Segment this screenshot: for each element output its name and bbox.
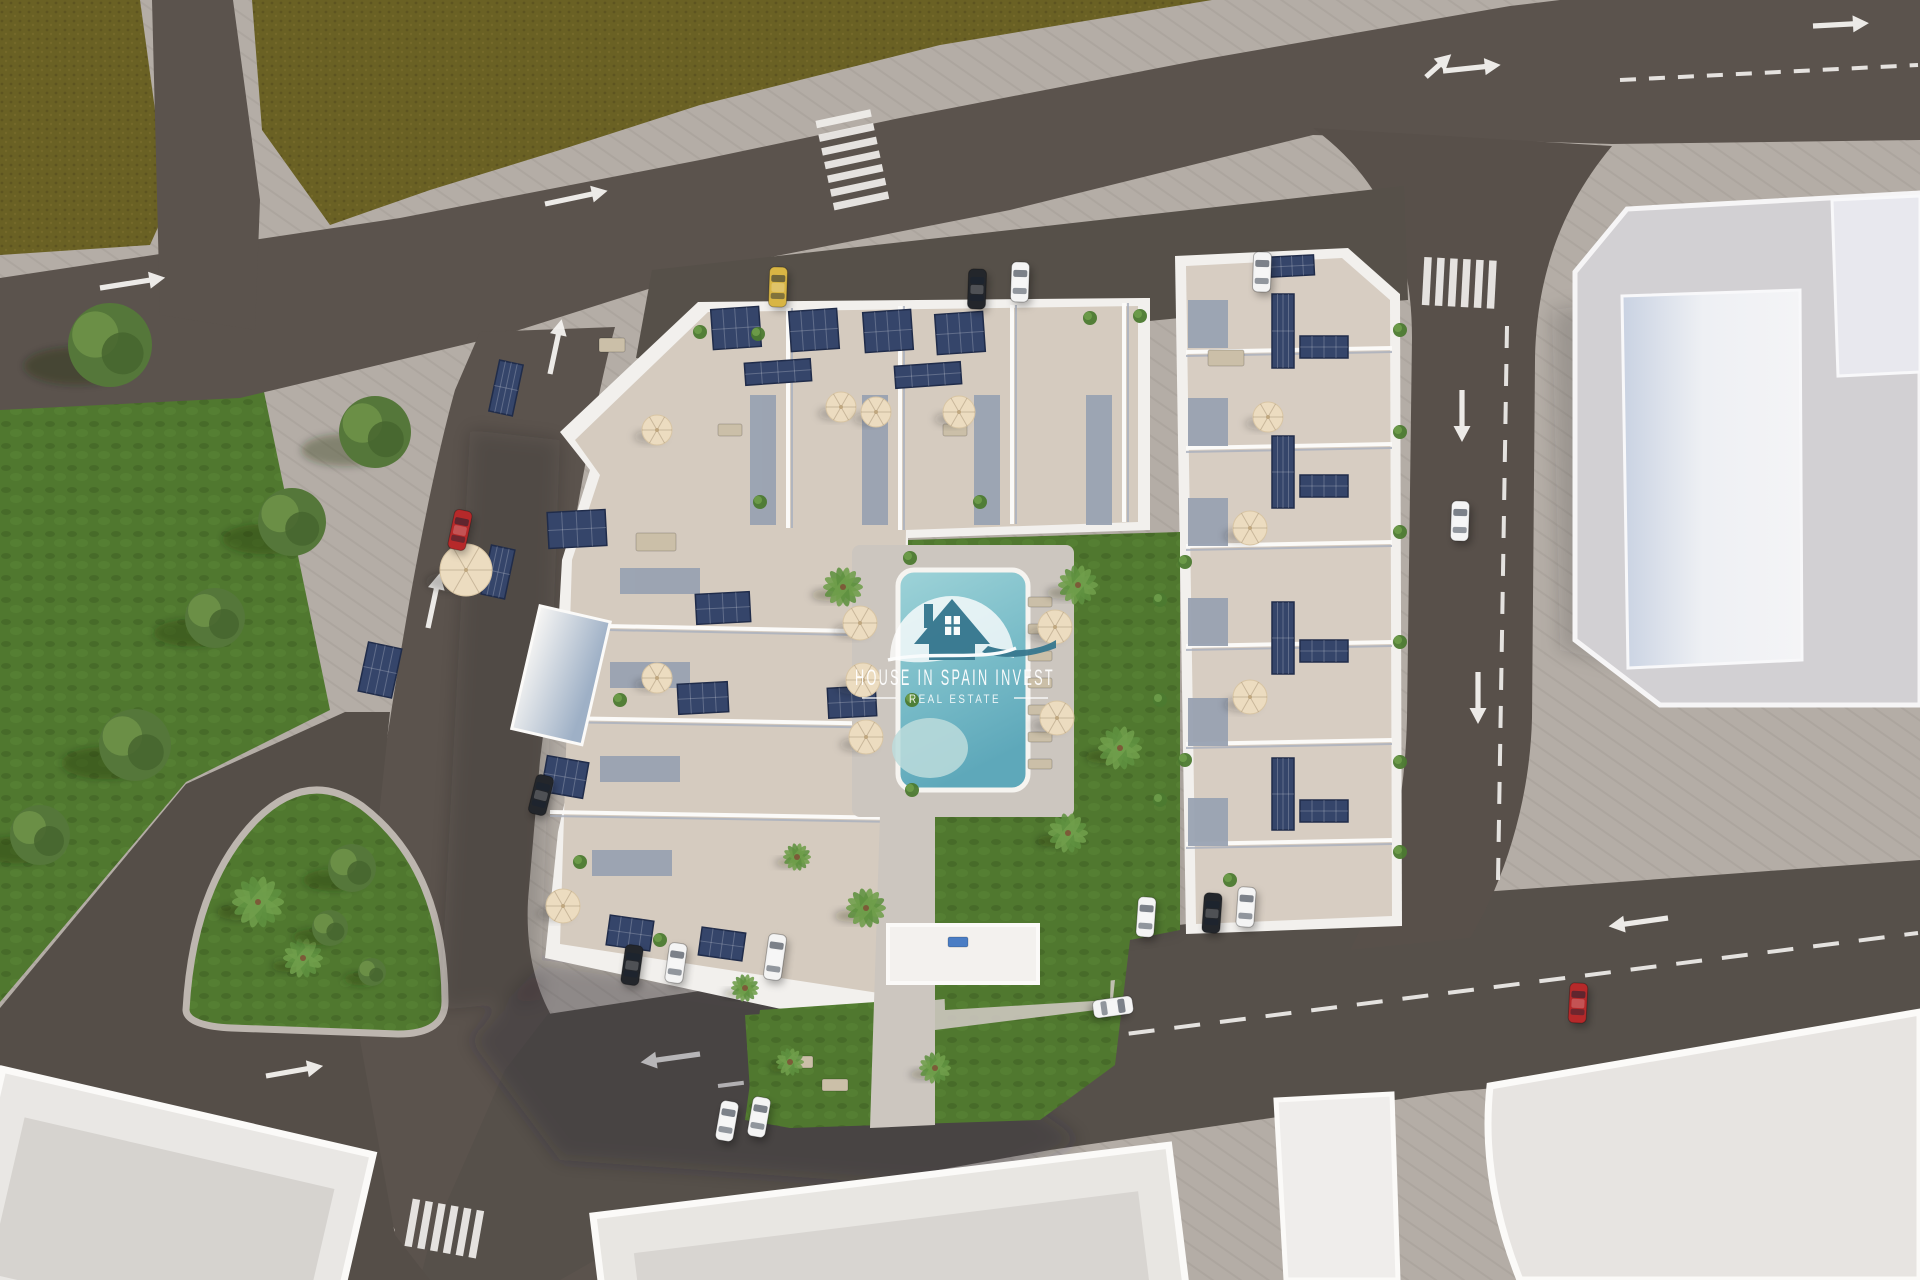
solar-panel [1300, 800, 1348, 822]
terrace-plant [1178, 753, 1192, 767]
terrace-plant [1178, 555, 1192, 569]
pool-house [888, 925, 1038, 983]
terrace-plant [753, 495, 767, 509]
solar-panel [935, 311, 986, 354]
car [967, 269, 990, 314]
terrace-plant [1393, 323, 1407, 337]
outdoor-furniture [948, 937, 968, 947]
solar-panel [547, 510, 607, 549]
outdoor-furniture [1028, 597, 1052, 607]
terrace-plant [1133, 309, 1147, 323]
terrace-plant [1153, 693, 1167, 707]
outdoor-furniture [822, 1079, 848, 1091]
car [1252, 252, 1275, 297]
east-building [1575, 193, 1920, 705]
terrace-plant [1393, 425, 1407, 439]
solar-panel [1300, 336, 1348, 358]
car [1010, 262, 1033, 307]
solar-panel [698, 927, 745, 961]
solar-panel [744, 359, 811, 386]
east-building-tower [1622, 290, 1802, 668]
solar-panel [894, 362, 961, 389]
car [1568, 983, 1591, 1028]
outdoor-furniture [599, 338, 625, 352]
terrace-plant [1393, 845, 1407, 859]
solar-panel [1270, 255, 1315, 277]
east-building-annex [1832, 196, 1920, 376]
outdoor-furniture [1028, 732, 1052, 742]
terrace-plant [1393, 525, 1407, 539]
terrace-plant [751, 327, 765, 341]
terrace-plant [1393, 635, 1407, 649]
terrace-plant [903, 551, 917, 565]
terrace-plant [613, 693, 627, 707]
aerial-site-render: HOUSE IN SPAIN INVEST REAL ESTATE [0, 0, 1920, 1280]
solar-panel [677, 682, 729, 715]
south-annex-building [1276, 1094, 1398, 1280]
solar-panel [1272, 758, 1294, 830]
outdoor-furniture [718, 424, 742, 436]
terrace-plant [573, 855, 587, 869]
terrace-plant [973, 495, 987, 509]
solar-panel [863, 309, 914, 352]
car [1235, 886, 1259, 931]
car [1450, 501, 1473, 546]
logo-title: HOUSE IN SPAIN INVEST [855, 665, 1055, 690]
terrace-plant [905, 783, 919, 797]
solar-panel [1272, 602, 1294, 674]
solar-panel [1272, 294, 1294, 368]
pool-beach-entry [892, 718, 968, 778]
car [768, 267, 791, 312]
field-northwest [0, 0, 168, 255]
solar-panel [1300, 640, 1348, 662]
car [1135, 896, 1159, 941]
solar-panel [1300, 475, 1348, 497]
outdoor-furniture [636, 533, 676, 551]
solar-panel [1272, 436, 1294, 508]
terrace-plant [1393, 755, 1407, 769]
terrace-plant [1153, 593, 1167, 607]
outdoor-furniture [1208, 350, 1244, 366]
logo-subtitle: REAL ESTATE [909, 692, 1001, 706]
outdoor-furniture [1028, 759, 1052, 769]
site-plan-canvas: HOUSE IN SPAIN INVEST REAL ESTATE [0, 0, 1920, 1280]
solar-panel [789, 308, 840, 351]
solar-panel [711, 306, 762, 349]
terrace-plant [693, 325, 707, 339]
car [1201, 892, 1225, 937]
terrace-plant [653, 933, 667, 947]
terrace-plant [1223, 873, 1237, 887]
terrace-plant [1153, 793, 1167, 807]
solar-panel [695, 592, 750, 625]
terrace-plant [1083, 311, 1097, 325]
